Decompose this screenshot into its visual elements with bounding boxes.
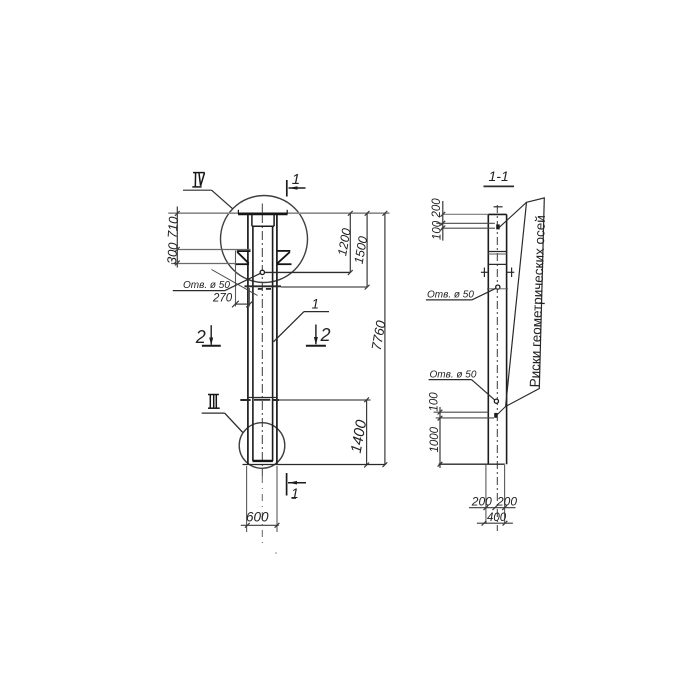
svg-text:Отв. ø 50: Отв. ø 50 — [427, 290, 474, 301]
svg-text:1000: 1000 — [429, 426, 441, 452]
svg-text:1-1: 1-1 — [489, 168, 509, 184]
svg-text:100: 100 — [429, 392, 441, 412]
svg-text:300: 300 — [164, 241, 181, 264]
svg-text:600: 600 — [246, 510, 269, 525]
svg-text:270: 270 — [212, 293, 233, 305]
svg-text:Отв. ø 50: Отв. ø 50 — [430, 370, 477, 381]
svg-text:1: 1 — [292, 171, 300, 188]
svg-text:200: 200 — [431, 198, 443, 219]
svg-text:200: 200 — [496, 495, 517, 509]
svg-text:Отв. ø 50: Отв. ø 50 — [183, 280, 230, 291]
svg-text:2: 2 — [320, 325, 331, 345]
svg-text:400: 400 — [487, 512, 507, 524]
svg-text:100: 100 — [432, 220, 444, 240]
svg-text:710: 710 — [165, 215, 182, 238]
svg-text:1: 1 — [312, 297, 320, 312]
svg-text:200: 200 — [471, 495, 492, 509]
svg-text:2: 2 — [195, 327, 206, 347]
